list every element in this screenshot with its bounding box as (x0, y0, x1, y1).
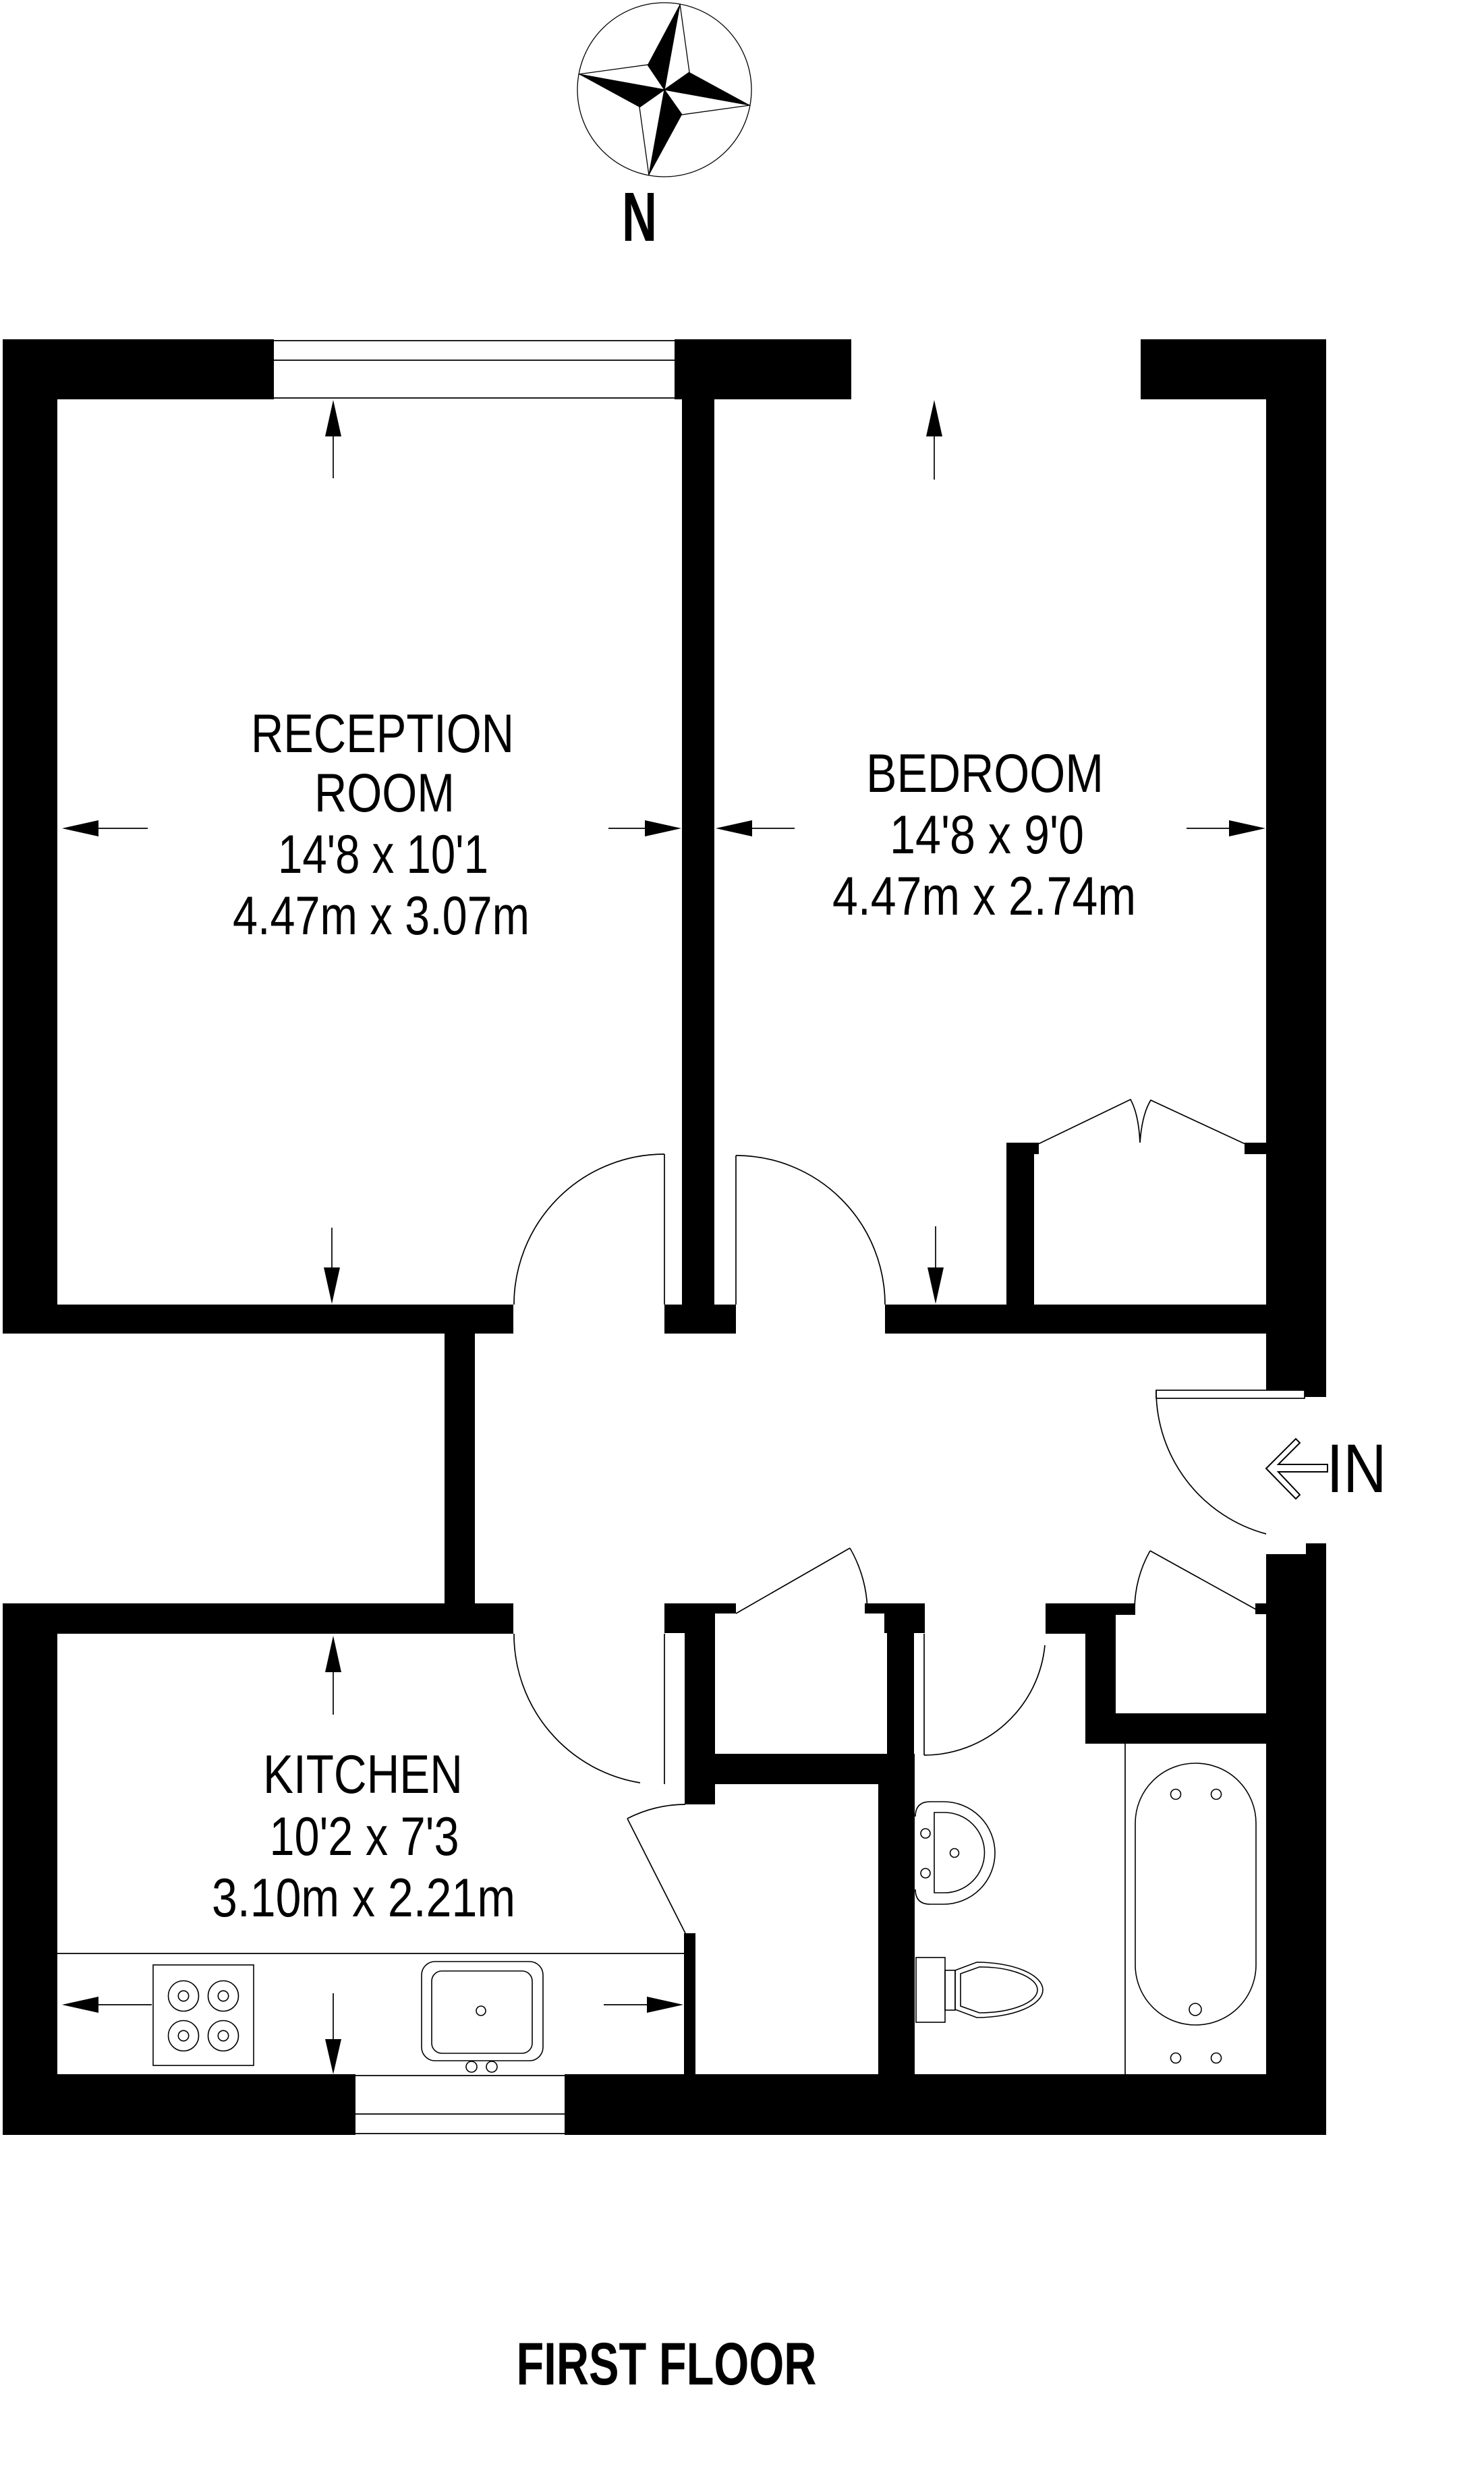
svg-text:4.47m x 2.74m: 4.47m x 2.74m (832, 866, 1136, 927)
svg-text:14'8 x 9'0: 14'8 x 9'0 (890, 805, 1084, 865)
svg-text:14'8 x 10'1: 14'8 x 10'1 (278, 824, 488, 885)
svg-text:KITCHEN: KITCHEN (263, 1744, 463, 1805)
svg-text:N: N (622, 178, 657, 256)
svg-text:BEDROOM: BEDROOM (866, 743, 1104, 804)
svg-text:RECEPTION: RECEPTION (251, 704, 514, 764)
svg-text:IN: IN (1327, 1430, 1387, 1507)
svg-text:3.10m x 2.21m: 3.10m x 2.21m (212, 1868, 515, 1929)
svg-text:FIRST FLOOR: FIRST FLOOR (517, 2330, 817, 2397)
svg-text:4.47m x 3.07m: 4.47m x 3.07m (233, 886, 530, 946)
svg-text:ROOM: ROOM (314, 763, 455, 824)
svg-text:10'2 x 7'3: 10'2 x 7'3 (270, 1806, 459, 1867)
